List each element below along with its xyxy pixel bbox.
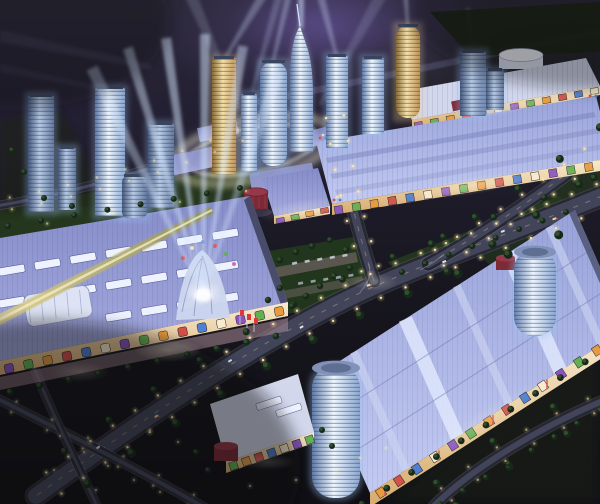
streetlight — [296, 309, 298, 311]
streetlight — [520, 213, 522, 215]
red-flag — [254, 318, 258, 324]
streetlight — [377, 265, 379, 267]
billboard — [558, 93, 567, 100]
streetlight — [329, 143, 331, 145]
street-tree-lit — [171, 196, 174, 199]
street-tree-lit — [428, 240, 432, 244]
streetlight — [11, 208, 13, 210]
streetlight — [530, 237, 532, 239]
streetlight — [353, 245, 355, 247]
streetlight — [128, 180, 130, 182]
tower-floors — [122, 176, 147, 218]
street-tree-lit — [433, 480, 437, 484]
street-tree-lit — [309, 243, 313, 247]
streetlight — [67, 184, 69, 186]
street-tree-lit — [319, 427, 322, 430]
street-tree-lit — [263, 362, 268, 367]
streetlight — [580, 217, 582, 219]
streetlight — [346, 220, 348, 222]
streetlight — [467, 466, 469, 468]
street-tree-lit — [277, 257, 281, 261]
street-tree-lit — [460, 488, 463, 491]
street-tree-lit — [552, 434, 555, 437]
street-tree-lit — [265, 297, 269, 301]
street-tree-lit — [384, 485, 388, 489]
balloon — [595, 95, 598, 98]
street-tree-lit — [303, 293, 307, 297]
streetlight — [499, 208, 501, 210]
street-tree-lit — [243, 329, 247, 333]
billboard — [177, 326, 188, 337]
street-tree-lit — [327, 237, 331, 241]
street-tree-lit — [214, 346, 218, 350]
streetlight — [521, 193, 523, 195]
streetlight — [525, 428, 527, 430]
streetlight — [394, 262, 396, 264]
streetlight — [8, 196, 10, 198]
streetlight — [555, 227, 557, 229]
scene-canvas: Aerial night rendering of a mixed-use co… — [0, 0, 600, 504]
streetlight — [363, 215, 365, 217]
street-tree-lit — [491, 214, 495, 218]
tower-roof-cap — [262, 60, 285, 63]
street-tree-lit — [317, 283, 321, 287]
street-tree-lit — [444, 268, 448, 272]
street-tree-lit — [508, 406, 512, 410]
cylindrical-tower-cap-core — [321, 363, 351, 373]
streetlight — [344, 284, 346, 286]
searchlight-halo — [187, 283, 219, 301]
cylindrical-tower-floors — [312, 366, 360, 498]
streetlight — [465, 251, 467, 253]
streetlight — [332, 320, 334, 322]
streetlight — [214, 151, 216, 153]
balloon — [224, 252, 228, 256]
street-tree-lit — [555, 231, 560, 236]
streetlight — [594, 162, 596, 164]
street-tree-lit — [105, 207, 108, 210]
streetlight — [340, 194, 342, 196]
street-tree-lit — [515, 185, 519, 189]
street-tree-lit — [504, 251, 509, 256]
streetlight — [479, 256, 481, 258]
balloon — [592, 92, 595, 95]
streetlight — [563, 427, 565, 429]
street-tree-lit — [21, 169, 24, 172]
car-taillight — [556, 218, 557, 219]
cylindrical-tower-cap-core — [522, 248, 548, 256]
street-tree-lit — [347, 265, 351, 269]
streetlight — [445, 242, 447, 244]
street-tree-lit — [293, 249, 297, 253]
street-tree-lit — [533, 212, 537, 216]
street-tree-lit — [489, 241, 493, 245]
billboard — [274, 306, 285, 317]
street-tree-lit — [434, 454, 438, 458]
billboard — [197, 322, 208, 333]
street-tree-lit — [454, 270, 459, 275]
streetlight — [470, 232, 472, 234]
streetlight — [440, 487, 442, 489]
tower-floors — [362, 58, 384, 134]
streetlight — [454, 266, 456, 268]
streetlight — [40, 202, 42, 204]
streetlight — [179, 201, 181, 203]
streetlight — [509, 223, 511, 225]
street-tree-lit — [9, 147, 12, 150]
billboard — [584, 162, 593, 171]
billboard — [216, 318, 227, 329]
street-tree-lit — [483, 475, 486, 478]
street-tree-lit — [540, 218, 543, 221]
street-tree-lit — [331, 273, 335, 277]
street-tree-lit — [237, 185, 240, 188]
streetlight — [477, 479, 479, 481]
streetlight — [533, 442, 535, 444]
streetlight — [370, 240, 372, 242]
street-tree-lit — [329, 443, 332, 446]
streetlight — [545, 203, 547, 205]
street-tree-lit — [390, 254, 394, 258]
streetlight — [356, 308, 358, 310]
streetlight — [96, 176, 98, 178]
streetlight — [46, 222, 48, 224]
streetlight — [352, 165, 354, 167]
streetlight — [124, 168, 126, 170]
street-tree-lit — [550, 404, 554, 408]
street-tree-lit — [529, 448, 532, 451]
streetlight — [320, 297, 322, 299]
streetlight — [478, 222, 480, 224]
red-flag — [247, 314, 251, 320]
billboard — [352, 202, 361, 211]
street-tree-lit — [204, 191, 207, 194]
streetlight — [404, 286, 406, 288]
street-tree-lit — [591, 175, 595, 179]
street-tree-lit — [273, 333, 277, 337]
streetlight — [209, 139, 211, 141]
billboard — [388, 196, 397, 205]
street-tree-lit — [5, 223, 8, 226]
street-tree-lit — [490, 438, 494, 442]
street-tree-lit — [277, 285, 281, 289]
streetlight — [343, 114, 345, 116]
streetlight — [443, 264, 445, 266]
streetlight — [450, 499, 452, 501]
street-tree-lit — [563, 209, 566, 212]
tower-roof-cap — [60, 146, 74, 149]
streetlight — [272, 323, 274, 325]
street-tree-lit — [493, 235, 496, 238]
streetlight — [555, 412, 557, 414]
streetlight — [434, 249, 436, 251]
streetlight — [157, 171, 159, 173]
streetlight — [595, 183, 597, 185]
architectural-rendering: Aerial night rendering of a mixed-use co… — [0, 0, 600, 504]
streetlight — [496, 446, 498, 448]
streetlight — [153, 159, 155, 161]
streetlight — [553, 193, 555, 195]
billboard — [574, 90, 583, 97]
streetlight — [574, 178, 576, 180]
streetlight — [38, 190, 40, 192]
streetlight — [325, 117, 327, 119]
street-tree-lit — [483, 422, 487, 426]
streetlight — [420, 252, 422, 254]
streetlight — [308, 332, 310, 334]
streetlight — [593, 412, 595, 414]
street-tree-lit — [72, 213, 75, 216]
billboard — [370, 199, 379, 208]
street-tree-lit — [556, 156, 560, 160]
streetlight — [429, 276, 431, 278]
tower-roof-cap — [243, 92, 255, 95]
street-tree-lit — [576, 181, 580, 185]
streetlight — [583, 148, 585, 150]
street-tree-lit — [506, 461, 509, 464]
streetlight — [380, 297, 382, 299]
tower-roof-cap — [328, 54, 346, 57]
streetlight — [456, 236, 458, 238]
tower-floors — [28, 96, 54, 212]
streetlight — [242, 139, 244, 141]
red-flag — [240, 310, 244, 316]
streetlight — [70, 195, 72, 197]
cylindrical-tower-floors — [514, 250, 556, 336]
streetlight — [542, 179, 544, 181]
streetlight — [285, 345, 287, 347]
street-tree-lit — [343, 247, 347, 251]
street-tree-lit — [446, 252, 449, 255]
tower-floors — [326, 56, 348, 148]
billboard — [566, 166, 575, 175]
tower-roof-cap — [214, 56, 234, 59]
junction-glow — [350, 273, 398, 291]
street-tree-lit — [517, 227, 520, 230]
street-tree-lit — [472, 214, 476, 218]
street-tree-lit — [39, 218, 42, 221]
street-tree-lit — [470, 244, 473, 247]
balloon — [232, 262, 236, 266]
street-tree-lit — [356, 311, 361, 316]
streetlight — [360, 270, 362, 272]
streetlight — [347, 140, 349, 142]
streetlight — [563, 163, 565, 165]
street-tree-lit — [541, 195, 545, 199]
street-tree-lit — [399, 269, 402, 272]
street-tree-lit — [458, 438, 462, 442]
street-tree-lit — [309, 336, 314, 341]
streetlight — [570, 193, 572, 195]
streetlight — [245, 190, 247, 192]
streetlight — [249, 337, 251, 339]
street-tree-lit — [440, 234, 444, 238]
streetlight — [357, 190, 359, 192]
streetlight — [262, 359, 264, 361]
billboard — [548, 169, 557, 178]
streetlight — [385, 447, 387, 449]
streetlight — [587, 397, 589, 399]
street-tree-lit — [138, 202, 141, 205]
streetlight — [181, 150, 183, 152]
streetlight — [237, 128, 239, 130]
billboard — [531, 172, 540, 181]
street-tree-lit — [582, 359, 586, 363]
street-tree-lit — [244, 339, 248, 343]
streetlight — [334, 169, 336, 171]
streetlight — [335, 469, 337, 471]
street-tree-lit — [404, 290, 409, 295]
streetlight — [488, 237, 490, 239]
street-tree-lit — [575, 421, 578, 424]
tower-floors — [396, 26, 420, 118]
streetlight — [185, 161, 187, 163]
street-tree-lit — [41, 195, 44, 198]
streetlight — [495, 222, 497, 224]
street-tree-lit — [409, 470, 413, 474]
streetlight — [505, 247, 507, 249]
streetlight — [225, 351, 227, 353]
streetlight — [112, 212, 114, 214]
balloon — [589, 95, 592, 98]
streetlight — [99, 188, 101, 190]
street-tree-lit — [289, 303, 293, 307]
street-tree-lit — [564, 431, 568, 435]
street-tree-lit — [558, 375, 562, 379]
street-tree-lit — [69, 203, 72, 206]
streetlight — [359, 457, 361, 459]
street-tree-lit — [423, 261, 426, 264]
balloon — [319, 137, 322, 140]
street-tree-lit — [533, 391, 537, 395]
tower-floors — [58, 148, 76, 210]
streetlight — [531, 208, 533, 210]
tower-roof-cap — [364, 56, 382, 59]
